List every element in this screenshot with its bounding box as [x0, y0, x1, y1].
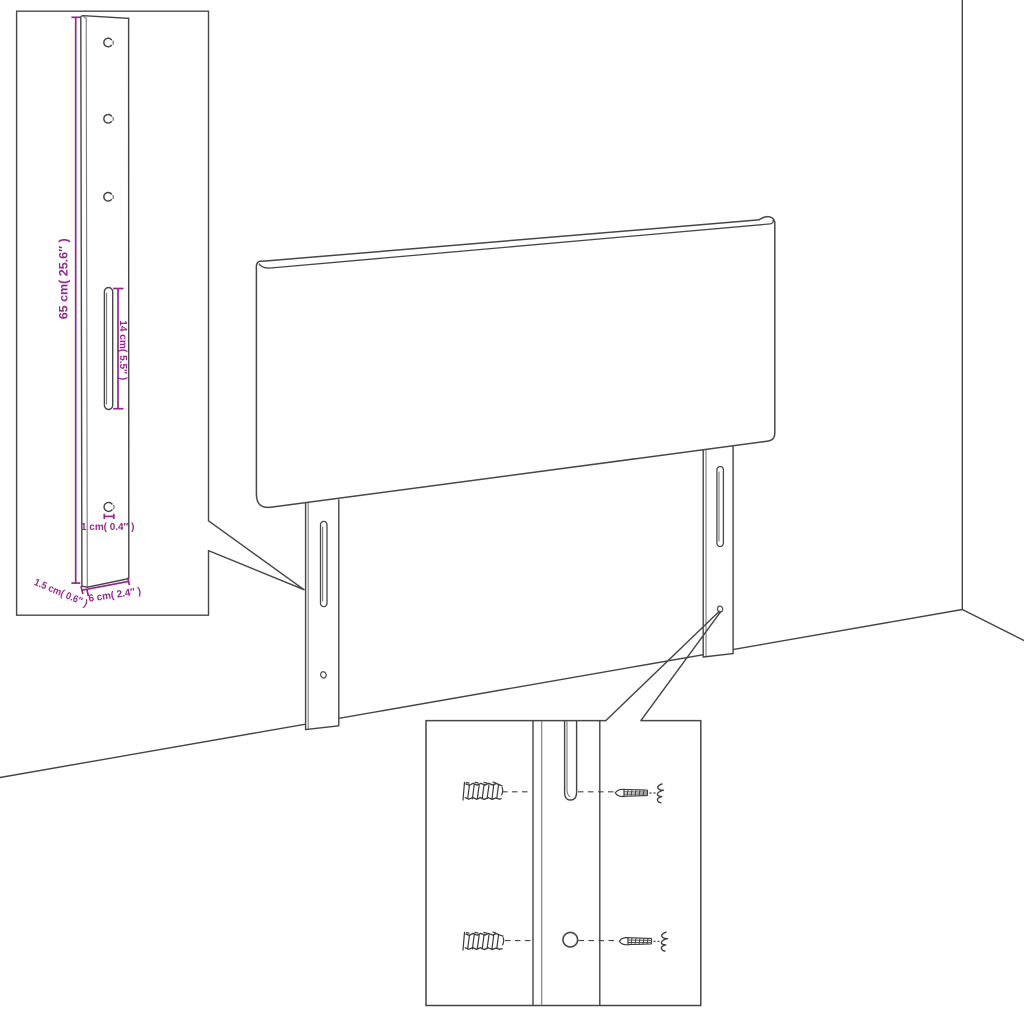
svg-text:1 cm( 0.4″ ): 1 cm( 0.4″ ) — [81, 522, 134, 533]
svg-text:14 cm( 5.5″ ): 14 cm( 5.5″ ) — [117, 320, 129, 380]
svg-text:65 cm( 25.6″ ): 65 cm( 25.6″ ) — [58, 238, 70, 319]
